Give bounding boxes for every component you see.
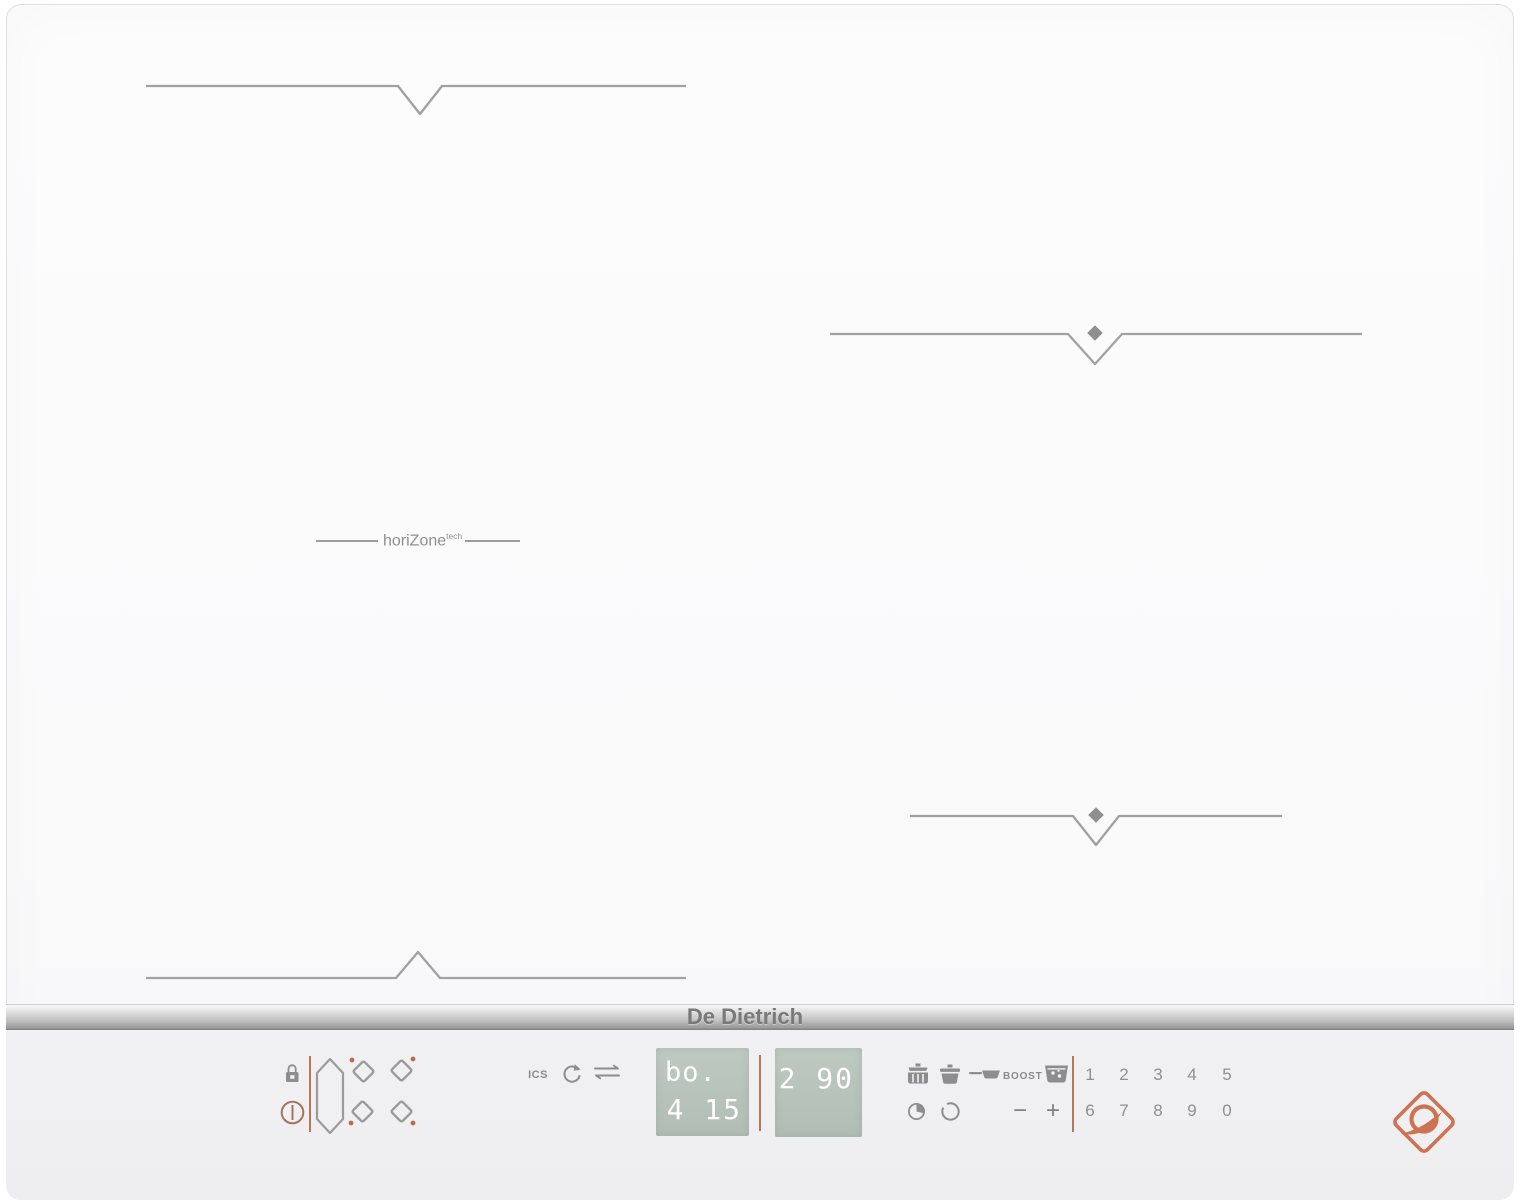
- keypad-1[interactable]: 1: [1079, 1064, 1101, 1086]
- steam-pot-icon[interactable]: [905, 1063, 931, 1086]
- transfer-icon[interactable]: [593, 1064, 621, 1081]
- label-rule-right: [465, 540, 520, 542]
- panel-divider: [759, 1055, 761, 1131]
- panel-divider: [309, 1056, 311, 1132]
- ics-key[interactable]: ICS: [523, 1069, 553, 1081]
- pot-icon[interactable]: [937, 1064, 963, 1085]
- zone-marker-right-rear: [828, 320, 1364, 370]
- technology-name: horiZonetech: [383, 531, 462, 550]
- elapsed-time-icon[interactable]: [907, 1102, 926, 1121]
- technology-sup: tech: [446, 531, 462, 541]
- keypad-3[interactable]: 3: [1147, 1064, 1169, 1086]
- keypad-9[interactable]: 9: [1181, 1100, 1203, 1122]
- zone-front-right-key-icon[interactable]: [386, 1096, 417, 1127]
- minus-key[interactable]: −: [1007, 1097, 1033, 1125]
- refresh-icon[interactable]: [560, 1062, 584, 1086]
- keypad-7[interactable]: 7: [1113, 1100, 1135, 1122]
- keypad-2[interactable]: 2: [1113, 1064, 1135, 1086]
- zone-marker-right-front: [908, 798, 1284, 852]
- induction-hob: horiZonetech De Dietrich ICS: [0, 0, 1520, 1202]
- timer-display: bo. 4 15: [656, 1048, 749, 1136]
- zone-diamond-icon: [1087, 325, 1103, 341]
- keypad-8[interactable]: 8: [1147, 1100, 1169, 1122]
- display-value: 2 90: [779, 1062, 854, 1095]
- boost-key[interactable]: BOOST: [1003, 1071, 1041, 1082]
- zone-rear-right-key-icon[interactable]: [386, 1055, 417, 1086]
- full-zone-key-icon[interactable]: [315, 1057, 345, 1135]
- deep-fryer-icon[interactable]: [1044, 1064, 1069, 1084]
- power-icon[interactable]: [279, 1099, 306, 1126]
- zone-diamond-icon: [1088, 807, 1104, 823]
- panel-divider: [1072, 1056, 1074, 1132]
- zone-marker-front-left: [144, 938, 688, 984]
- ring-icon[interactable]: [940, 1101, 961, 1122]
- brand-wordmark: De Dietrich: [0, 1004, 1505, 1029]
- plus-key[interactable]: +: [1040, 1097, 1066, 1125]
- power-display: 2 90: [775, 1048, 862, 1137]
- label-rule-left: [316, 540, 378, 542]
- keypad-0[interactable]: 0: [1216, 1100, 1238, 1122]
- technology-label: horiZonetech: [316, 530, 520, 552]
- display-line2: 4 15: [667, 1093, 742, 1126]
- keypad-6[interactable]: 6: [1079, 1100, 1101, 1122]
- frying-pan-icon[interactable]: [969, 1068, 1001, 1080]
- zone-rear-left-key-icon[interactable]: [348, 1056, 379, 1087]
- de-dietrich-horn-logo: [1388, 1086, 1460, 1158]
- lock-icon[interactable]: [283, 1062, 302, 1084]
- zone-marker-rear-left: [144, 74, 688, 120]
- keypad-4[interactable]: 4: [1181, 1064, 1203, 1086]
- zone-front-left-key-icon[interactable]: [347, 1096, 378, 1127]
- keypad-5[interactable]: 5: [1216, 1064, 1238, 1086]
- display-line1: bo.: [665, 1057, 717, 1088]
